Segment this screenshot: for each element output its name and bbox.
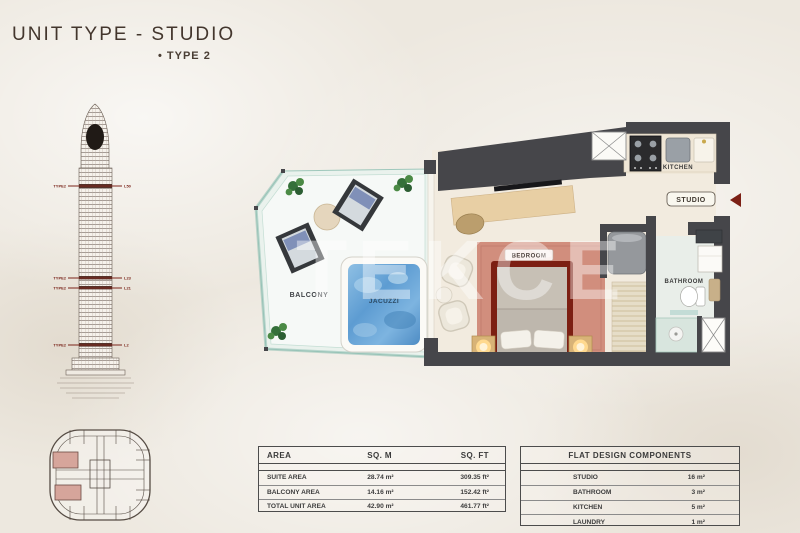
bathroom-wall	[646, 216, 656, 354]
row-sqm: 42.90 m²	[367, 503, 443, 510]
side-table	[436, 287, 452, 303]
studio-unit: BEDROOM	[424, 122, 741, 366]
shower	[656, 318, 700, 352]
area-table: AREA SQ. M SQ. FT SUITE AREA 28.74 m² 30…	[258, 446, 506, 512]
cooktop-board	[666, 138, 690, 162]
col-header-sqm: SQ. M	[367, 451, 443, 460]
bathroom-mirror	[696, 230, 722, 243]
table-row: TOTAL UNIT AREA 42.90 m² 461.77 ft²	[259, 500, 505, 514]
entry-arrow-icon	[730, 193, 741, 207]
balcony-label: BALCONY	[290, 292, 329, 299]
col-header-area: AREA	[259, 451, 367, 460]
bathroom-cabinet	[698, 246, 722, 272]
components-table-title: FLAT DESIGN COMPONENTS	[521, 447, 739, 464]
table-row: LAUNDRY 1 m²	[521, 515, 739, 529]
component-value: 16 m²	[688, 474, 739, 481]
floorplan-sheet: UNIT TYPE - STUDIO • TYPE 2	[0, 0, 800, 533]
table-row: BATHROOM 3 m²	[521, 486, 739, 501]
component-name: KITCHEN	[521, 504, 602, 511]
table-spacer	[259, 464, 505, 471]
tower-spire-window	[86, 124, 104, 150]
laundry-box	[697, 316, 725, 354]
marker-left-label: TYPE2	[53, 184, 66, 189]
toilet	[681, 287, 706, 307]
bathroom-label: BATHROOM	[665, 279, 704, 285]
component-name: LAUNDRY	[521, 519, 605, 526]
bed	[491, 261, 573, 361]
marker-right-label: L50	[124, 184, 132, 189]
row-name: SUITE AREA	[259, 474, 367, 481]
marker-left-label: TYPE2	[53, 286, 66, 291]
tower-elevation: TYPE2 L50 TYPE2 L23 TYPE2 L21 TYPE2 L2	[53, 104, 134, 398]
bedroom-label: BEDROOM	[512, 254, 547, 260]
marker-right-label: L23	[124, 276, 132, 281]
key-plan-highlight-unit	[55, 485, 81, 500]
balcony-glass-door	[428, 172, 434, 340]
marker-right-label: L21	[124, 286, 132, 291]
component-value: 3 m²	[691, 489, 739, 496]
jacuzzi-label: JACUZZI	[369, 298, 399, 305]
balcony: JACUZZI BALCONY	[254, 169, 430, 357]
table-row: STUDIO 16 m²	[521, 471, 739, 486]
component-name: BATHROOM	[521, 489, 611, 496]
kitchen-label: KITCHEN	[663, 165, 693, 171]
tower-base	[57, 358, 134, 398]
row-name: BALCONY AREA	[259, 489, 367, 496]
row-sqm: 14.16 m²	[367, 489, 443, 496]
area-table-header: AREA SQ. M SQ. FT	[259, 447, 505, 464]
table-row: SUITE AREA 28.74 m² 309.35 ft²	[259, 471, 505, 486]
component-value: 1 m²	[691, 519, 739, 526]
components-table: FLAT DESIGN COMPONENTS STUDIO 16 m² BATH…	[520, 446, 740, 526]
hall-runner-rug	[612, 282, 648, 352]
row-sqft: 461.77 ft²	[443, 503, 505, 510]
marker-left-label: TYPE2	[53, 343, 66, 348]
component-value: 5 m²	[691, 504, 739, 511]
row-sqft: 309.35 ft²	[443, 474, 505, 481]
towel-rack	[709, 279, 720, 301]
stove	[630, 136, 661, 171]
key-plan-highlight-unit	[53, 452, 78, 468]
marker-right-label: L2	[124, 343, 129, 348]
component-name: STUDIO	[521, 474, 598, 481]
table-spacer	[521, 464, 739, 471]
faucet	[702, 140, 706, 144]
col-header-sqft: SQ. FT	[443, 451, 505, 460]
row-name: TOTAL UNIT AREA	[259, 503, 367, 510]
marker-left-label: TYPE2	[53, 276, 66, 281]
row-sqm: 28.74 m²	[367, 474, 443, 481]
glass-shelf	[670, 310, 698, 315]
row-sqft: 152.42 ft²	[443, 489, 505, 496]
tower-shaft	[79, 168, 112, 358]
key-plan	[50, 430, 150, 520]
table-row: BALCONY AREA 14.16 m² 152.42 ft²	[259, 486, 505, 501]
table-row: KITCHEN 5 m²	[521, 501, 739, 516]
studio-label: STUDIO	[676, 197, 706, 204]
